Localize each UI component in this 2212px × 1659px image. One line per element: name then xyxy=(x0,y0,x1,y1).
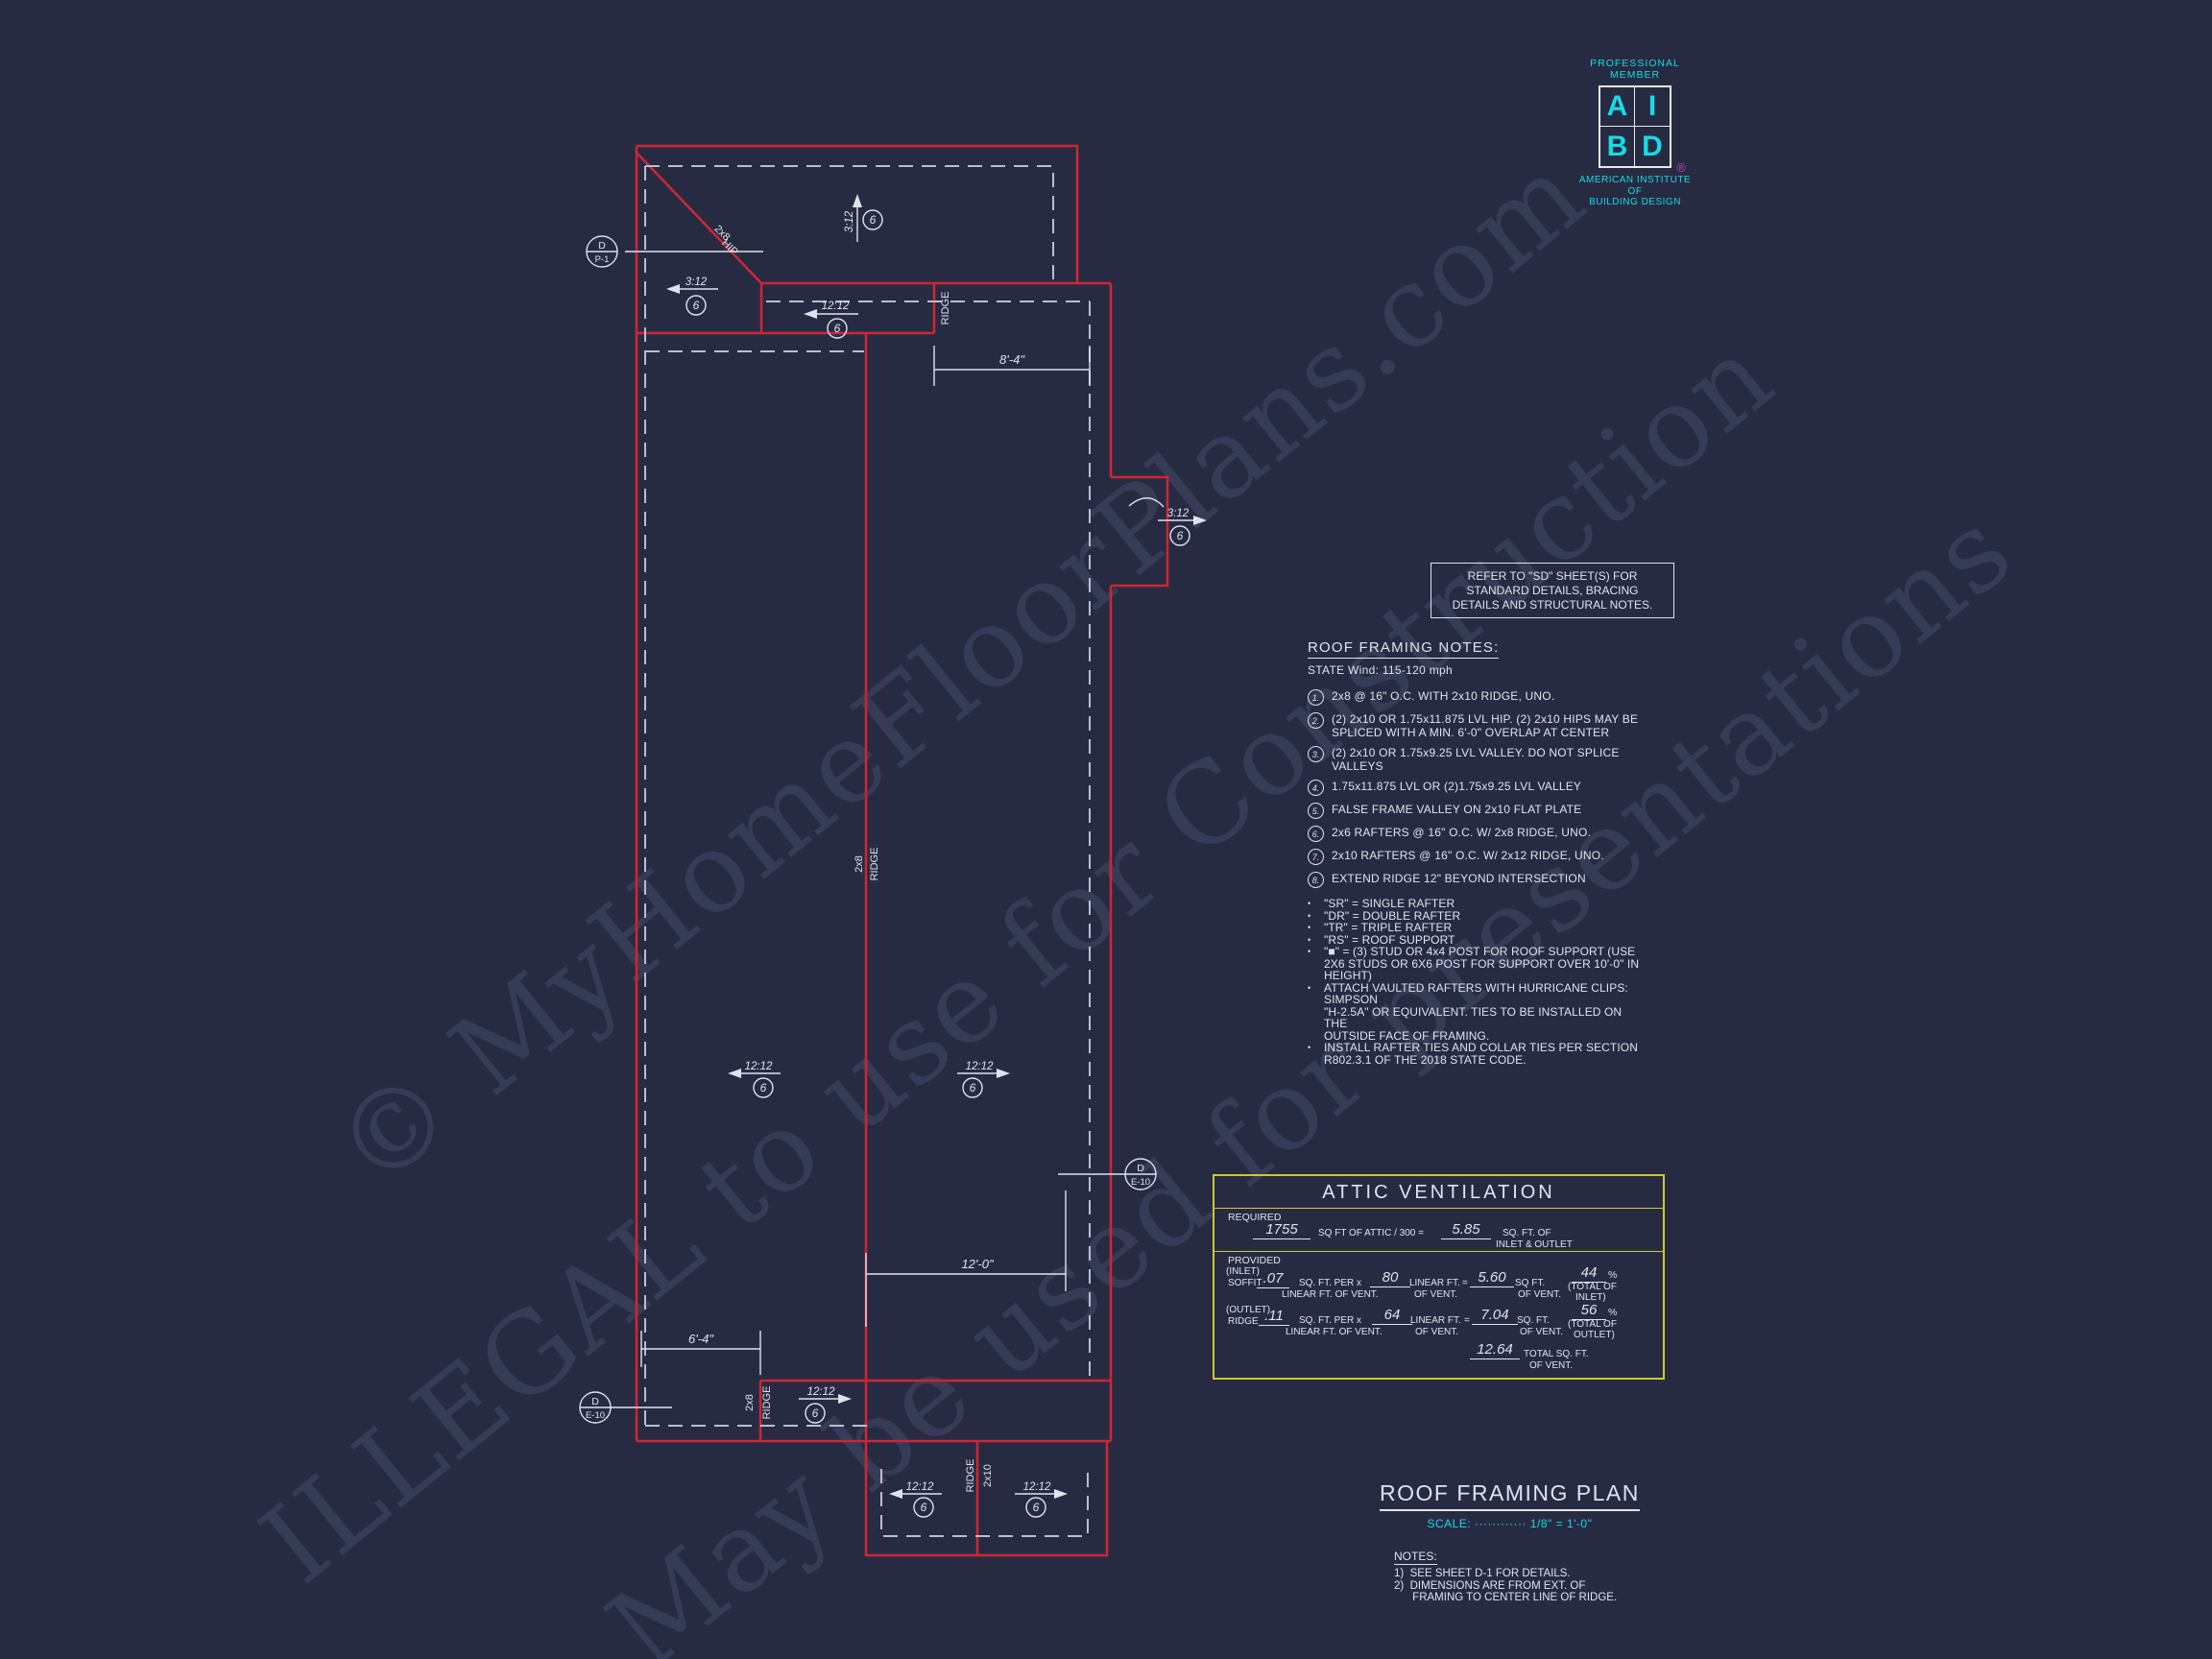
dimension-6-4: 6'-4" xyxy=(688,1332,714,1346)
slope-label: 12:12 xyxy=(822,301,850,312)
ridge-size-label: 2x8 xyxy=(744,1394,756,1411)
note-ref-6: 6 xyxy=(693,299,700,312)
slope-label: 12:12 xyxy=(906,1481,934,1493)
attic-ventilation-table: ATTIC VENTILATION REQUIRED 1755 SQ FT OF… xyxy=(1213,1174,1665,1380)
note-ref-6: 6 xyxy=(834,322,841,335)
note-item-2: 2. (2) 2x10 OR 1.75x11.875 LVL HIP. (2) … xyxy=(1308,712,1646,739)
inlet-length-unit: LINEAR FT. xyxy=(1409,1278,1460,1288)
bullet-icon: • xyxy=(1308,934,1315,947)
ridge-label: RIDGE xyxy=(761,1386,773,1420)
inlet-rate-unit-2: LINEAR FT. OF VENT. xyxy=(1282,1289,1379,1300)
note-item-4: 4. 1.75x11.875 LVL OR (2)1.75x9.25 LVL V… xyxy=(1308,780,1646,796)
inlet-tag: (INLET) xyxy=(1226,1266,1260,1277)
inlet-length: 80 xyxy=(1370,1269,1410,1287)
marker-d: D xyxy=(591,1396,599,1407)
note-ref-6: 6 xyxy=(921,1501,927,1514)
note-ref-6: 6 xyxy=(1177,529,1184,542)
dimension-12-0: 12'-0" xyxy=(961,1257,995,1271)
note-number: 5. xyxy=(1308,803,1324,819)
logo-letter-b: B xyxy=(1600,127,1635,166)
total-label-2: OF VENT. xyxy=(1529,1360,1573,1371)
note-text: 2x10 RAFTERS @ 16" O.C. W/ 2x12 RIDGE, U… xyxy=(1332,849,1604,865)
note-number: 2. xyxy=(1308,712,1324,729)
outlet-rate: .11 xyxy=(1259,1308,1289,1326)
scale-dots: ············ xyxy=(1475,1517,1527,1530)
logo-letter-a: A xyxy=(1600,87,1635,127)
sheet-title: ROOF FRAMING PLAN xyxy=(1380,1480,1640,1511)
note-ref-circles xyxy=(686,210,1190,1517)
slope-label: 3:12 xyxy=(1167,508,1190,519)
ridge-size-label: 2x8 xyxy=(854,855,865,873)
bullet-item: • INSTALL RAFTER TIES AND COLLAR TIES PE… xyxy=(1308,1042,1646,1066)
roof-framing-plan-drawing: 6 6 6 6 6 6 6 6 6 3:12 3:12 12:12 3:12 1… xyxy=(0,0,2212,1659)
logo-letter-d: D xyxy=(1635,127,1670,166)
bottom-notes-body: 1) SEE SHEET D-1 FOR DETAILS. 2) DIMENSI… xyxy=(1394,1568,1617,1604)
note-text: 1.75x11.875 LVL OR (2)1.75x9.25 LVL VALL… xyxy=(1332,780,1581,796)
bullet-text: INSTALL RAFTER TIES AND COLLAR TIES PER … xyxy=(1324,1042,1638,1066)
required-unit-2: INLET & OUTLET xyxy=(1496,1239,1573,1250)
scale-value: 1/8" = 1'-0" xyxy=(1530,1517,1593,1530)
state-wind-note: STATE Wind: 115-120 mph xyxy=(1308,663,1646,677)
inlet-percent: 44 xyxy=(1572,1264,1606,1283)
logo-member-line2: MEMBER xyxy=(1563,69,1707,81)
logo-member-line1: PROFESSIONAL xyxy=(1563,58,1707,69)
dimension-8-4: 8'-4" xyxy=(999,352,1025,367)
ridge-size-label: 2x10 xyxy=(982,1464,994,1487)
required-unit: SQ. FT. OF xyxy=(1503,1228,1551,1238)
percent-sign: % xyxy=(1608,1307,1617,1318)
registered-trademark-icon: ® xyxy=(1676,160,1686,175)
bullet-item: • "TR" = TRIPLE RAFTER xyxy=(1308,922,1646,934)
note-item-6: 6. 2x6 RAFTERS @ 16" O.C. W/ 2x8 RIDGE, … xyxy=(1308,826,1646,842)
inlet-result: 5.60 xyxy=(1470,1269,1514,1287)
ridge-labels: RIDGE 2x8 RIDGE 2x8 RIDGE RIDGE 2x10 2x8… xyxy=(711,223,994,1492)
note-text: (2) 2x10 OR 1.75x11.875 LVL HIP. (2) 2x1… xyxy=(1332,712,1638,739)
slope-label: 3:12 xyxy=(844,210,855,232)
bullet-icon: • xyxy=(1308,946,1315,982)
note-item-7: 7. 2x10 RAFTERS @ 16" O.C. W/ 2x12 RIDGE… xyxy=(1308,849,1646,865)
total-vent-area: 12.64 xyxy=(1470,1341,1520,1359)
marker-e10: E-10 xyxy=(586,1410,605,1421)
attic-table-title: ATTIC VENTILATION xyxy=(1214,1182,1663,1204)
outlet-length-unit-2: OF VENT. xyxy=(1415,1327,1458,1337)
bullet-text: ATTACH VAULTED RAFTERS WITH HURRICANE CL… xyxy=(1324,982,1646,1043)
bottom-notes-title: NOTES: xyxy=(1394,1550,1437,1565)
logo-org-line2: OF xyxy=(1563,186,1707,198)
outlet-result-unit: SQ. FT. xyxy=(1517,1315,1550,1326)
bullet-icon: • xyxy=(1308,982,1315,1043)
note-number: 6. xyxy=(1308,826,1324,842)
logo-letter-i: I xyxy=(1635,87,1670,127)
required-formula: SQ FT OF ATTIC / 300 = xyxy=(1318,1228,1424,1238)
arrowheads xyxy=(666,194,1207,1499)
marker-p1: P-1 xyxy=(595,254,610,265)
roof-framing-notes: ROOF FRAMING NOTES: STATE Wind: 115-120 … xyxy=(1308,639,1646,1066)
bullet-icon: • xyxy=(1308,1042,1315,1066)
note-text: (2) 2x10 OR 1.75x9.25 LVL VALLEY. DO NOT… xyxy=(1332,746,1620,773)
outlet-percent-note: (TOTAL OF xyxy=(1568,1319,1617,1330)
inlet-result-unit: SQ FT. xyxy=(1515,1278,1545,1288)
slope-labels: 3:12 3:12 12:12 3:12 12:12 12:12 12:12 1… xyxy=(685,210,1190,1493)
bullet-text: "TR" = TRIPLE RAFTER xyxy=(1324,922,1452,934)
ridge-label: RIDGE xyxy=(965,1459,976,1493)
note-text: 2x8 @ 16" O.C. WITH 2x10 RIDGE, UNO. xyxy=(1332,689,1554,706)
outlet-rate-unit-2: LINEAR FT. OF VENT. xyxy=(1286,1327,1382,1337)
inlet-rate: .07 xyxy=(1257,1270,1289,1288)
equals-sign: = xyxy=(1464,1315,1470,1326)
scale-label: SCALE: xyxy=(1428,1517,1472,1530)
bullet-icon: • xyxy=(1308,910,1315,923)
note-number: 7. xyxy=(1308,849,1324,865)
outlet-percent: 56 xyxy=(1572,1302,1606,1320)
outlet-result: 7.04 xyxy=(1472,1307,1518,1325)
outlet-result-unit-2: OF VENT. xyxy=(1520,1327,1563,1337)
logo-org-line1: AMERICAN INSTITUTE xyxy=(1563,175,1707,186)
detail-markers xyxy=(580,236,1156,1423)
ridge-label: RIDGE xyxy=(869,848,880,881)
note-ref-6: 6 xyxy=(1033,1501,1040,1514)
bottom-notes: NOTES: 1) SEE SHEET D-1 FOR DETAILS. 2) … xyxy=(1394,1548,1617,1604)
note-item-3: 3. (2) 2x10 OR 1.75x9.25 LVL VALLEY. DO … xyxy=(1308,746,1646,773)
roof-framing-notes-title: ROOF FRAMING NOTES: xyxy=(1308,639,1499,659)
bullet-item: • ATTACH VAULTED RAFTERS WITH HURRICANE … xyxy=(1308,982,1646,1043)
note-number: 4. xyxy=(1308,780,1324,796)
bullet-text: "■" = (3) STUD OR 4x4 POST FOR ROOF SUPP… xyxy=(1324,946,1639,982)
percent-sign: % xyxy=(1608,1269,1617,1281)
note-number: 3. xyxy=(1308,746,1324,762)
outlet-length: 64 xyxy=(1372,1307,1412,1325)
drawing-sheet: © MyHomeFloorPlans.com ILLEGAL to use fo… xyxy=(0,0,2212,1659)
slope-label: 12:12 xyxy=(966,1061,994,1072)
slope-label: 3:12 xyxy=(685,276,708,288)
bullet-item: • "SR" = SINGLE RAFTER xyxy=(1308,898,1646,910)
scale-note: SCALE: ············ 1/8" = 1'-0" xyxy=(1380,1517,1640,1530)
bullet-item: • "■" = (3) STUD OR 4x4 POST FOR ROOF SU… xyxy=(1308,946,1646,982)
ridge-label: RIDGE xyxy=(940,292,951,325)
aibd-logo-box: A I B D ® xyxy=(1599,85,1671,168)
note-ref-6: 6 xyxy=(760,1081,767,1094)
marker-d: D xyxy=(598,240,606,252)
outlet-length-unit: LINEAR FT. xyxy=(1410,1315,1461,1326)
dimension-texts: 8'-4" 6'-4" 12'-0" xyxy=(688,352,1025,1346)
note-ref-6: 6 xyxy=(812,1407,819,1420)
marker-e10: E-10 xyxy=(1131,1177,1150,1188)
inlet-length-unit-2: OF VENT. xyxy=(1414,1289,1457,1300)
note-item-5: 5. FALSE FRAME VALLEY ON 2x10 FLAT PLATE xyxy=(1308,803,1646,819)
note-item-8: 8. EXTEND RIDGE 12" BEYOND INTERSECTION xyxy=(1308,872,1646,888)
equals-sign: = xyxy=(1462,1278,1468,1288)
required-attic-area: 1755 xyxy=(1253,1221,1310,1239)
roof-outline-red xyxy=(637,146,1167,1555)
inlet-percent-note: (TOTAL OF xyxy=(1568,1282,1617,1292)
bullet-icon: • xyxy=(1308,922,1315,934)
slope-label: 12:12 xyxy=(807,1386,835,1398)
bullet-text: "SR" = SINGLE RAFTER xyxy=(1324,898,1455,910)
aibd-logo: PROFESSIONAL MEMBER A I B D ® AMERICAN I… xyxy=(1563,58,1707,208)
note-ref-6: 6 xyxy=(970,1081,976,1094)
bullet-icon: • xyxy=(1308,898,1315,910)
table-divider xyxy=(1214,1251,1663,1252)
note-text: 2x6 RAFTERS @ 16" O.C. W/ 2x8 RIDGE, UNO… xyxy=(1332,826,1591,842)
note-number: 8. xyxy=(1308,872,1324,888)
table-divider xyxy=(1214,1208,1663,1209)
provided-label: PROVIDED xyxy=(1228,1255,1281,1266)
required-vent-area: 5.85 xyxy=(1441,1221,1491,1239)
slope-label: 12:12 xyxy=(745,1061,773,1072)
note-text: FALSE FRAME VALLEY ON 2x10 FLAT PLATE xyxy=(1332,803,1581,819)
sd-reference-note-box: REFER TO "SD" SHEET(S) FOR STANDARD DETA… xyxy=(1431,563,1674,618)
outlet-percent-note-2: OUTLET) xyxy=(1574,1330,1615,1340)
note-number: 1. xyxy=(1308,689,1324,706)
outlet-name: RIDGE xyxy=(1228,1316,1259,1327)
legend-bullets: • "SR" = SINGLE RAFTER • "DR" = DOUBLE R… xyxy=(1308,898,1646,1066)
note-ref-6: 6 xyxy=(870,213,877,227)
total-label: TOTAL SQ. FT. xyxy=(1524,1349,1589,1359)
marker-d: D xyxy=(1137,1163,1144,1174)
slope-label: 12:12 xyxy=(1023,1481,1051,1493)
logo-org-line3: BUILDING DESIGN xyxy=(1563,197,1707,208)
inlet-rate-unit: SQ. FT. PER x xyxy=(1299,1278,1361,1288)
outlet-rate-unit: SQ. FT. PER x xyxy=(1299,1315,1361,1326)
note-text: EXTEND RIDGE 12" BEYOND INTERSECTION xyxy=(1332,872,1586,888)
inlet-result-unit-2: OF VENT. xyxy=(1518,1289,1561,1300)
overhang-dashed-lines xyxy=(645,166,1090,1536)
sheet-title-block: ROOF FRAMING PLAN SCALE: ············ 1/… xyxy=(1380,1480,1640,1530)
note-item-1: 1. 2x8 @ 16" O.C. WITH 2x10 RIDGE, UNO. xyxy=(1308,689,1646,706)
